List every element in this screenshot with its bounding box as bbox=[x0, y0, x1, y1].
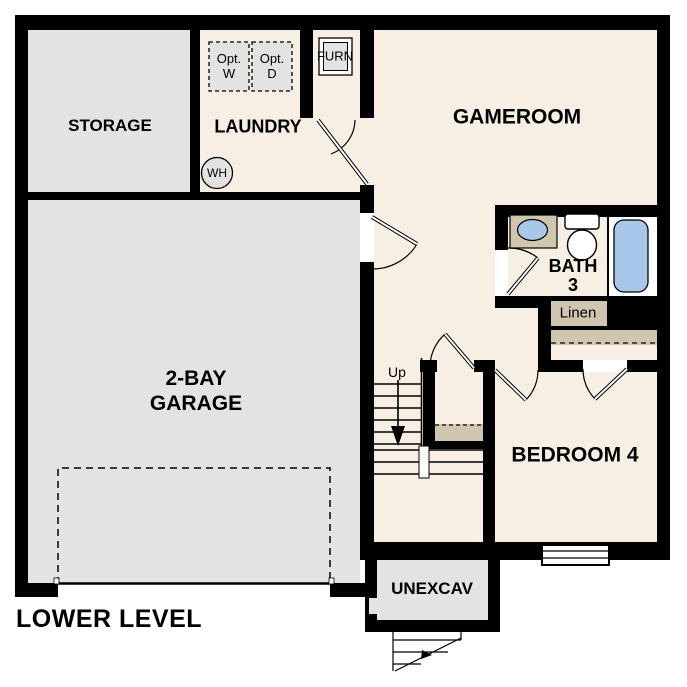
opt-dryer-line1: Opt. bbox=[260, 51, 285, 66]
wall-bath-top bbox=[495, 205, 657, 217]
storage-room-floor bbox=[27, 28, 190, 192]
vestibule-floor bbox=[495, 308, 538, 372]
bedroom-closet-shelf bbox=[551, 330, 657, 345]
wall-garage-bottom-left bbox=[15, 583, 58, 597]
wall-exterior-right bbox=[657, 15, 670, 560]
bedroom-closet-floor bbox=[551, 345, 657, 360]
wall-garage-right-upper bbox=[360, 185, 374, 213]
room-label-linen: Linen bbox=[560, 305, 597, 322]
wall-bedroom-left bbox=[483, 360, 495, 543]
wall-understair-closet bbox=[423, 362, 435, 448]
wall-furnace-right bbox=[360, 28, 374, 118]
unexcav-floor-notch bbox=[369, 598, 377, 614]
wall-exterior-top bbox=[15, 15, 670, 30]
laundry-doorway-floor bbox=[360, 118, 374, 185]
opt-washer-line2: W bbox=[223, 66, 235, 81]
room-label-unexcav: UNEXCAV bbox=[391, 579, 473, 599]
exterior-steps-arrow-icon bbox=[421, 650, 432, 659]
wall-garage-top bbox=[27, 192, 360, 200]
opt-washer-line1: Opt. bbox=[217, 51, 242, 66]
bath3-label-line1: BATH bbox=[549, 256, 598, 276]
furnace-closet-floor bbox=[313, 28, 360, 118]
opt-dryer-label: Opt. D bbox=[260, 51, 285, 81]
water-heater-label: WH bbox=[207, 166, 227, 180]
stairs-up-label: Up bbox=[388, 364, 406, 380]
room-label-laundry: LAUNDRY bbox=[214, 117, 301, 138]
wall-furnace-left bbox=[300, 28, 313, 118]
room-label-storage: STORAGE bbox=[68, 116, 152, 136]
wall-bath-left bbox=[495, 205, 508, 250]
bedroom4-window bbox=[541, 544, 610, 566]
exterior-steps bbox=[393, 628, 461, 671]
garage-label-line2: GARAGE bbox=[150, 392, 242, 415]
bath3-label-line2: 3 bbox=[568, 275, 578, 295]
wall-storage-laundry bbox=[190, 28, 200, 200]
room-label-bedroom4: BEDROOM 4 bbox=[511, 443, 638, 468]
garage-label-line1: 2-BAY bbox=[165, 367, 226, 390]
wall-hall-c bbox=[538, 360, 583, 372]
understair-shelf bbox=[435, 424, 483, 441]
floor-plan: STORAGE LAUNDRY GAMEROOM 2-BAY GARAGE BA… bbox=[0, 0, 687, 687]
room-label-gameroom: GAMEROOM bbox=[453, 105, 581, 130]
room-label-garage: 2-BAY GARAGE bbox=[150, 366, 242, 416]
opt-dryer-line2: D bbox=[267, 66, 276, 81]
opt-washer-label: Opt. W bbox=[217, 51, 242, 81]
room-label-bath3: BATH 3 bbox=[549, 257, 598, 295]
wall-hall-d bbox=[627, 360, 657, 372]
wall-understair-bottom bbox=[423, 441, 483, 449]
wall-garage-right-lower bbox=[360, 262, 374, 543]
tub-alcove bbox=[607, 217, 657, 296]
plan-title: LOWER LEVEL bbox=[16, 605, 202, 634]
furnace-label: FURN bbox=[317, 49, 353, 64]
wall-exterior-left bbox=[15, 15, 28, 597]
